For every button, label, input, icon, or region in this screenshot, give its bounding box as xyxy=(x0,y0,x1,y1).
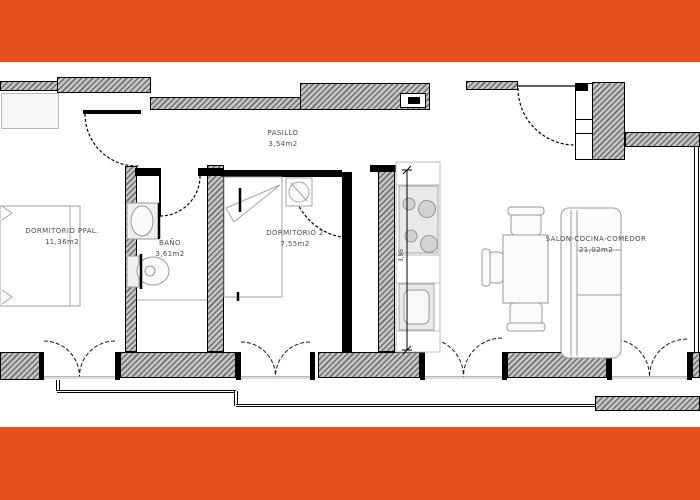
room-name: DORMITORIO 2 xyxy=(266,229,324,237)
room-label-salon: SALON-COCINA-COMEDOR 21,02m2 xyxy=(546,234,647,256)
bed-icon xyxy=(0,206,80,306)
sofa-icon xyxy=(561,208,621,358)
room-name: DORMITORIO PPAL. xyxy=(25,227,99,235)
floorplan-page: DORMITORIO PPAL. 11,36m2 BAÑO 3,61m2 DOR… xyxy=(0,0,700,500)
sink-icon xyxy=(399,284,434,330)
room-name: BAÑO xyxy=(159,239,181,247)
dimension-label: 3,95 xyxy=(398,249,405,262)
ceiling-light-icon xyxy=(286,178,312,206)
room-label-dormitorio-ppal: DORMITORIO PPAL. 11,36m2 xyxy=(25,226,99,248)
room-area: 11,36m2 xyxy=(25,237,99,248)
room-area: 21,02m2 xyxy=(546,245,647,256)
room-name: PASILLO xyxy=(268,129,299,137)
room-label-dormitorio-2: DORMITORIO 2 7,55m2 xyxy=(266,228,324,250)
hob-icon xyxy=(399,186,438,253)
dining-table-icon xyxy=(482,207,548,331)
room-label-pasillo: PASILLO 3,54m2 xyxy=(268,128,299,150)
room-area: 3,54m2 xyxy=(268,139,299,150)
washbasin-icon xyxy=(127,203,159,239)
room-name: SALON-COCINA-COMEDOR xyxy=(546,235,647,243)
room-area: 3,61m2 xyxy=(155,249,184,260)
room-area: 7,55m2 xyxy=(266,239,324,250)
room-label-bano: BAÑO 3,61m2 xyxy=(155,238,184,260)
